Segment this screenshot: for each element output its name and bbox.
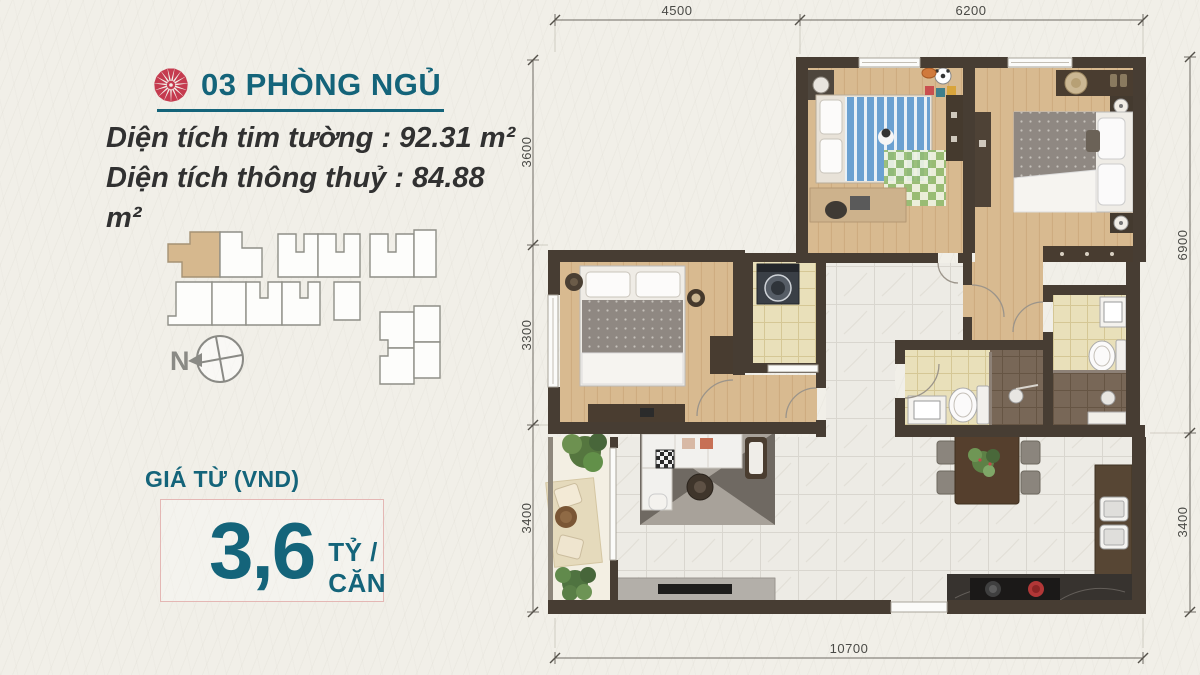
key-plan-unit-highlight xyxy=(168,232,220,277)
price-box: 3,6 TỶ / CĂN xyxy=(160,499,384,602)
compass-north-label: N xyxy=(170,346,190,376)
window-kitchen xyxy=(891,602,947,612)
page-title: 03 PHÒNG NGỦ xyxy=(201,67,441,103)
dim-left-3: 3400 xyxy=(519,503,534,534)
laundry-sliding-door xyxy=(768,365,818,372)
dim-left-2: 3300 xyxy=(519,320,534,351)
building-key-plan: N xyxy=(148,220,456,398)
dim-bottom: 10700 xyxy=(830,641,869,656)
dim-top-right: 6200 xyxy=(956,3,987,18)
balcony-sliding-door xyxy=(610,448,616,560)
dim-right-2: 3400 xyxy=(1175,507,1190,538)
floor-plan: 4500 6200 3600 3300 3400 6900 3400 10700 xyxy=(500,0,1200,675)
area-gross: Diện tích tim tường : 92.31 m² xyxy=(106,118,526,158)
dim-top-left: 4500 xyxy=(662,3,693,18)
price-label: GIÁ TỪ (VND) xyxy=(145,466,299,493)
dim-right-1: 6900 xyxy=(1175,230,1190,261)
price-amount: 3,6 xyxy=(209,511,314,591)
laundry-furniture xyxy=(757,264,799,304)
price-unit: TỶ / CĂN xyxy=(328,537,386,599)
compass-icon: N xyxy=(170,336,243,382)
listing-header: 03 PHÒNG NGỦ xyxy=(152,66,441,104)
flower-burst-icon xyxy=(152,66,190,104)
title-underline xyxy=(157,109,444,112)
dim-left-1: 3600 xyxy=(519,137,534,168)
